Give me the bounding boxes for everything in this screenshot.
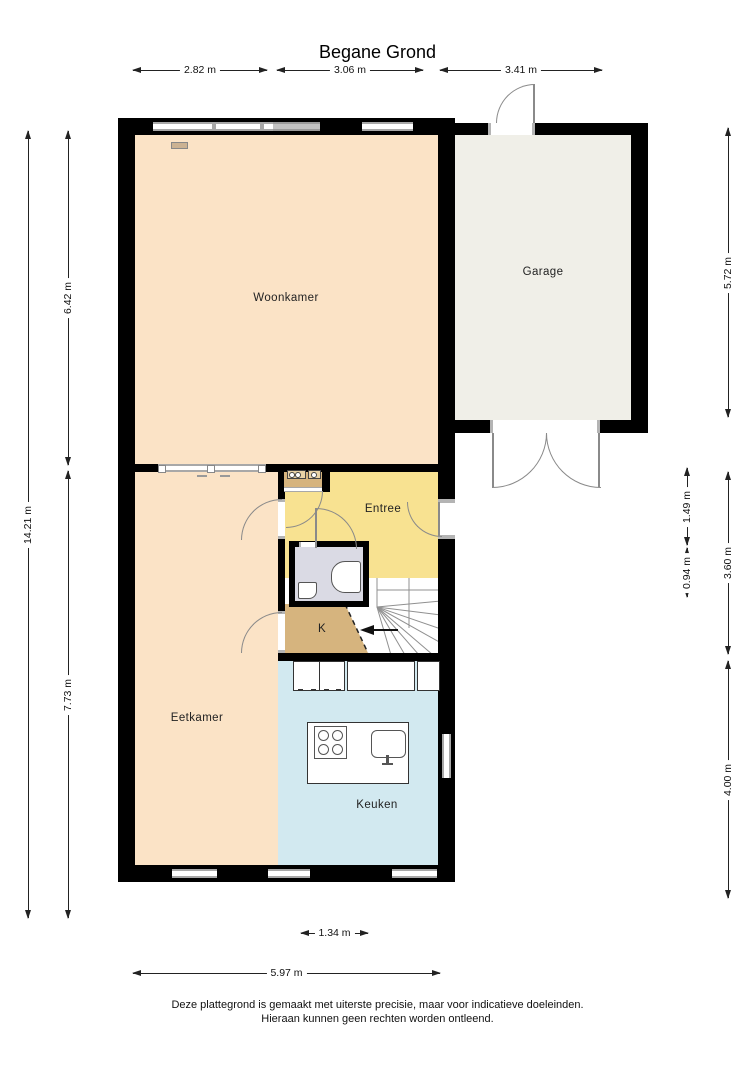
dimension-top-2: 3.06 m	[277, 64, 423, 76]
dimension-left-eetkamer: 7.73 m	[62, 471, 74, 918]
garage-main-door-opening	[490, 420, 600, 433]
window-mullion	[260, 122, 264, 131]
disclaimer-line-2: Hieraan kunnen geen rechten worden ontle…	[0, 1013, 755, 1027]
window-bottom-1	[172, 869, 217, 878]
toilet-icon	[331, 561, 361, 593]
page-title: Begane Grond	[0, 42, 755, 63]
window-bottom-3	[392, 869, 437, 878]
cabinet-foot	[311, 689, 316, 691]
cabinet-foot	[324, 689, 329, 691]
wall-meterkast	[322, 464, 330, 492]
door-jamb	[299, 542, 301, 547]
kitchen-cabinet	[347, 661, 415, 691]
divider-handle	[197, 475, 207, 477]
label-garage: Garage	[523, 266, 564, 278]
stairs-arrow-line	[374, 629, 398, 631]
door-jamb	[532, 123, 535, 135]
divider-node	[207, 465, 215, 473]
panel-top	[273, 122, 320, 131]
divider-handle	[220, 475, 230, 477]
dimension-left-total: 14.21 m	[22, 131, 34, 918]
meter-dial-icon	[295, 472, 301, 478]
dimension-bottom-2: 5.97 m	[133, 967, 440, 979]
kitchen-cabinet	[417, 661, 440, 691]
label-entree: Entree	[365, 503, 401, 515]
divider-node	[258, 465, 266, 473]
window-woonkamer-top-2	[362, 122, 413, 131]
garage-door-left-leaf	[492, 433, 494, 487]
door-jamb	[490, 420, 493, 433]
disclaimer: Deze plattegrond is gemaakt met uiterste…	[0, 999, 755, 1027]
dimension-bottom-1: 1.34 m	[301, 927, 368, 939]
label-keuken: Keuken	[356, 799, 397, 811]
toilet-sink-icon	[298, 582, 317, 599]
cabinet-foot	[336, 689, 341, 691]
stairs-arrow-icon	[360, 625, 374, 635]
sink-icon	[371, 730, 406, 758]
label-woonkamer: Woonkamer	[253, 292, 318, 304]
label-eetkamer: Eetkamer	[171, 712, 223, 724]
kitchen-cabinet	[319, 661, 345, 691]
garage-side-door-leaf	[533, 84, 535, 123]
dimension-left-woonkamer: 6.42 m	[62, 131, 74, 465]
front-door-leaf	[438, 502, 440, 536]
dimension-right-kitchen: 4.00 m	[722, 661, 734, 898]
sink-tap-icon	[386, 755, 389, 763]
garage-door-right-leaf	[598, 433, 600, 487]
dimension-right-garage: 5.72 m	[722, 128, 734, 417]
window-mullion	[212, 122, 216, 131]
dimension-top-3: 3.41 m	[440, 64, 602, 76]
burner-icon	[318, 744, 329, 755]
dimension-right-middle: 3.60 m	[722, 472, 734, 654]
kitchen-cabinet	[293, 661, 320, 691]
garage-side-door-opening	[488, 123, 535, 135]
wall-left	[118, 118, 135, 882]
dimension-right-toilet: 0.94 m	[681, 548, 693, 597]
burner-icon	[332, 730, 343, 741]
door-jamb	[488, 123, 491, 135]
vent-icon	[171, 142, 188, 149]
dimension-top-1: 2.82 m	[133, 64, 267, 76]
garage-door-right-arc	[546, 433, 601, 488]
garage-door-left-arc	[492, 433, 547, 488]
cabinet-foot	[298, 689, 303, 691]
wall-garage-right	[631, 123, 648, 433]
meter-dial-icon	[311, 472, 317, 478]
burner-icon	[332, 744, 343, 755]
floor-plan: Begane Grond	[0, 0, 755, 1067]
window-keuken-right	[442, 734, 451, 778]
staircase	[369, 575, 441, 655]
label-kast: K	[318, 623, 326, 635]
toilet-door-leaf	[315, 508, 317, 548]
burner-icon	[318, 730, 329, 741]
sink-tap-icon	[382, 763, 393, 765]
wall-garage-top	[448, 123, 648, 135]
divider-node	[158, 465, 166, 473]
dimension-right-entree: 1.49 m	[681, 468, 693, 545]
door-jamb	[597, 420, 600, 433]
disclaimer-line-1: Deze plattegrond is gemaakt met uiterste…	[0, 999, 755, 1013]
wall-under-stairs	[278, 653, 455, 661]
garage-side-door-arc	[496, 84, 535, 123]
window-bottom-2	[268, 869, 310, 878]
